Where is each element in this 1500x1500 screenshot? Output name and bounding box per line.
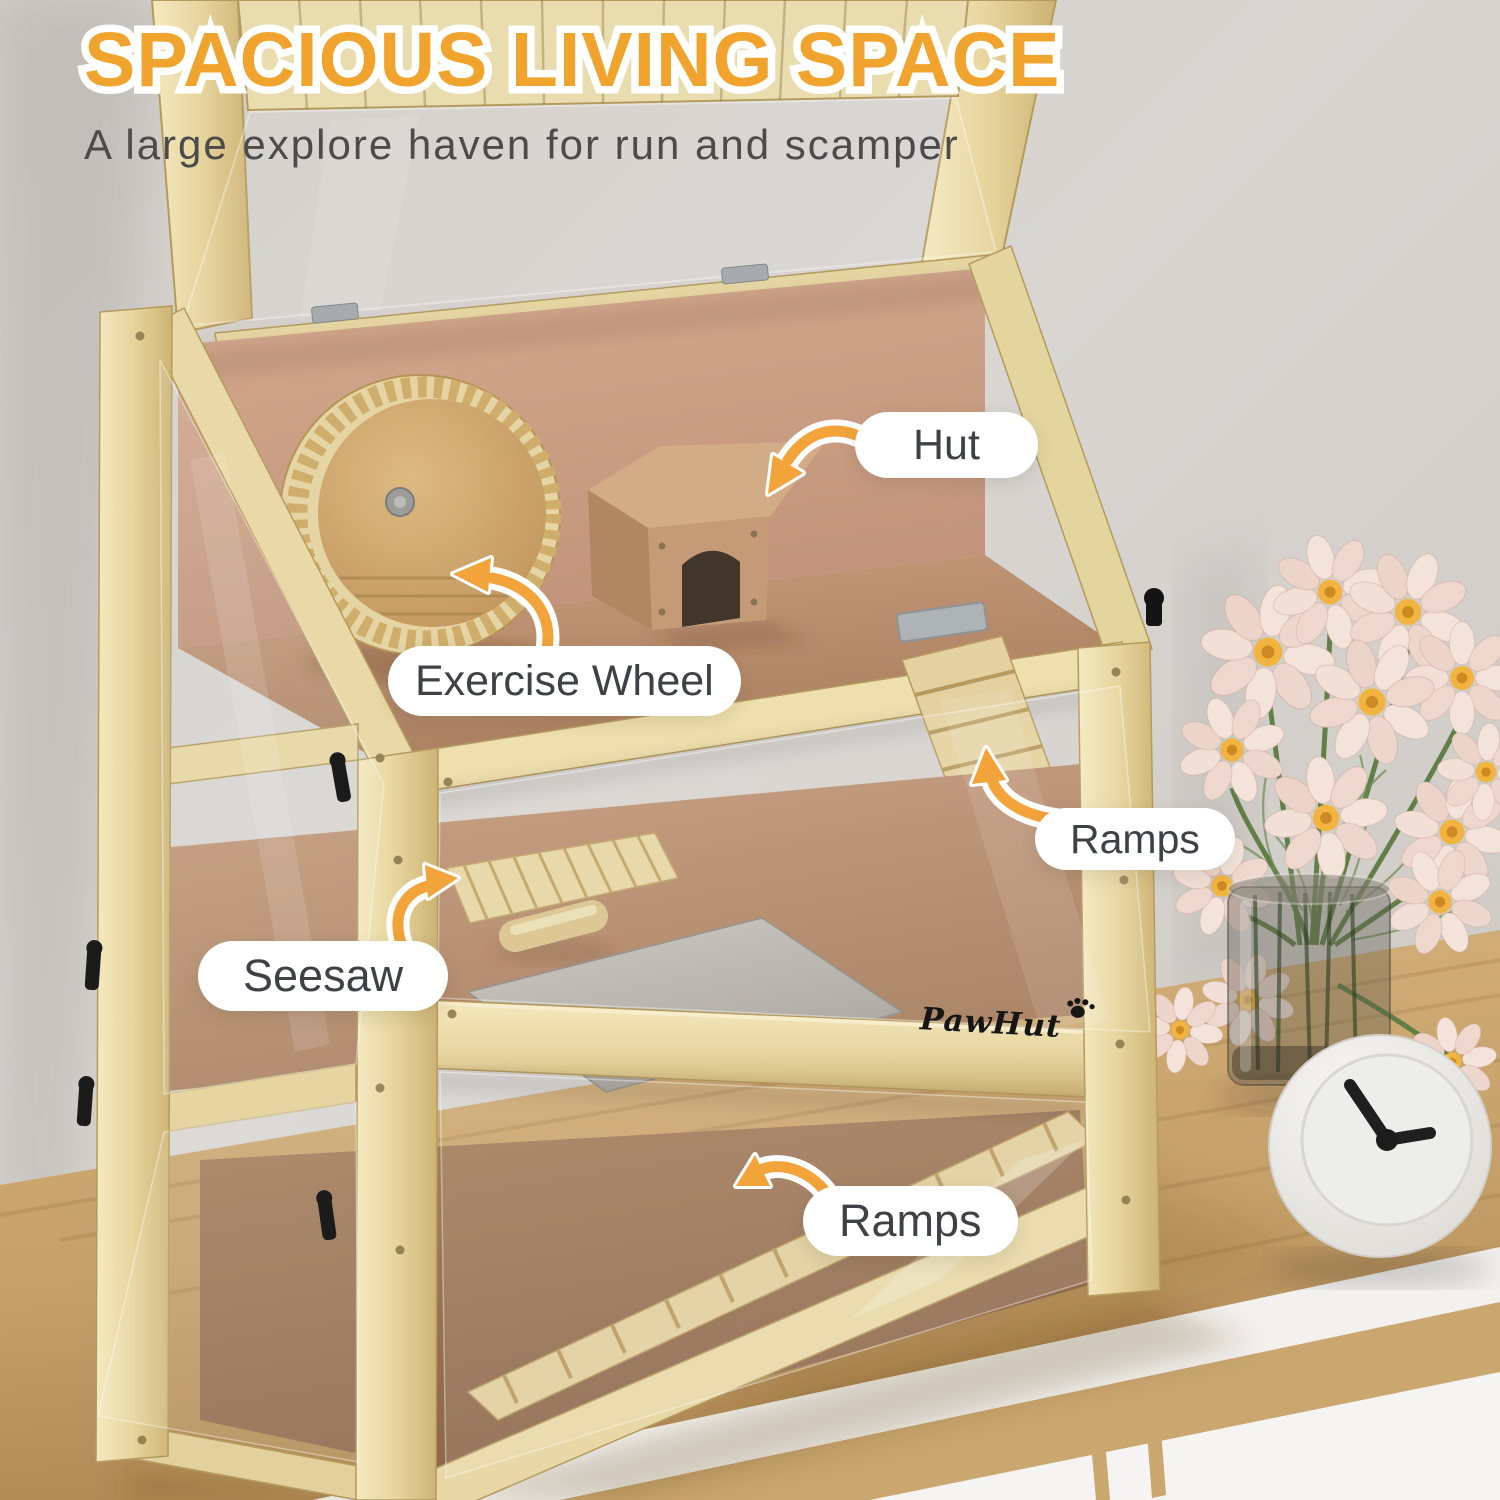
hamster-cage <box>75 0 1164 1500</box>
scene-illustration <box>0 0 1500 1500</box>
callout-label: Seesaw <box>243 950 403 1002</box>
paw-icon <box>1066 995 1097 1023</box>
page-title: SPACIOUS LIVING SPACE <box>84 20 1061 101</box>
product-marketing-image: PawHut <box>0 0 1500 1500</box>
callout-label: Hut <box>913 421 980 470</box>
callout-seesaw: Seesaw <box>198 941 448 1011</box>
callout-hut: Hut <box>855 412 1038 478</box>
hut-doorway <box>682 551 740 627</box>
callout-label: Ramps <box>1070 816 1200 863</box>
headline: SPACIOUS LIVING SPACE SPACIOUS LIVING SP… <box>84 20 1061 169</box>
callout-ramps-upper: Ramps <box>1035 808 1235 870</box>
callout-label: Ramps <box>839 1195 982 1247</box>
callout-exercise-wheel: Exercise Wheel <box>388 646 741 716</box>
callout-ramps-lower: Ramps <box>803 1186 1018 1256</box>
callout-label: Exercise Wheel <box>415 657 714 706</box>
page-subtitle: A large explore haven for run and scampe… <box>84 121 1061 169</box>
